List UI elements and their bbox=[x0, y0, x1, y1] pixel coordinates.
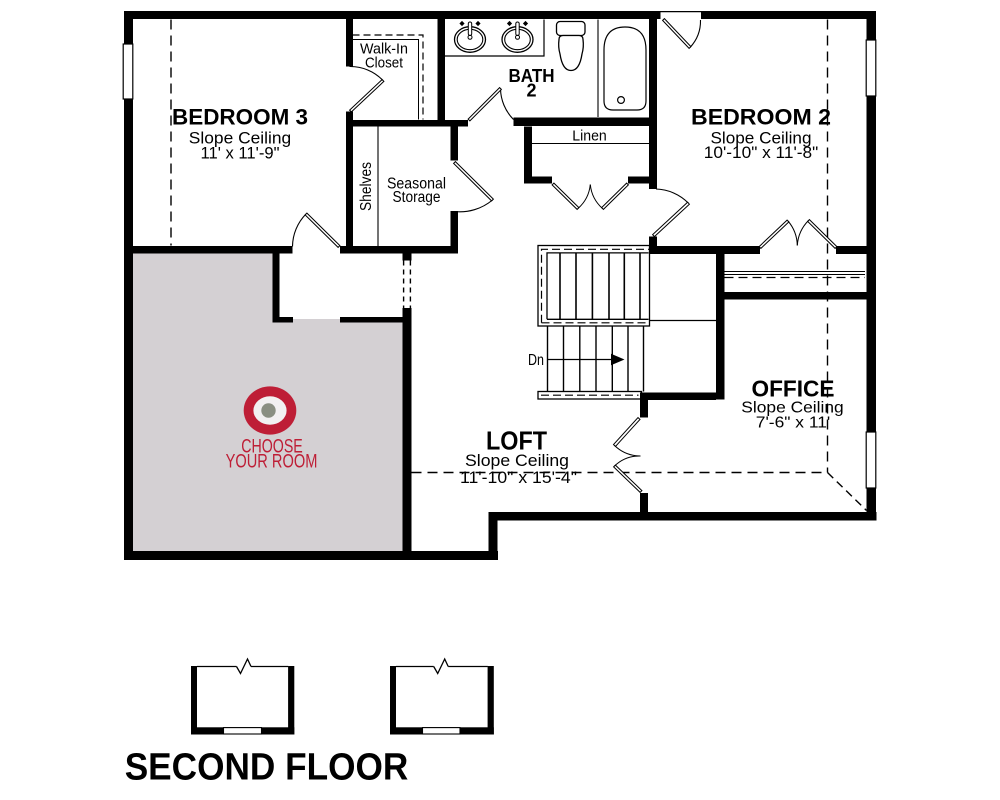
svg-text:LOFT: LOFT bbox=[486, 426, 547, 456]
svg-text:Dn: Dn bbox=[528, 352, 544, 369]
svg-text:10'-10" x 11'-8": 10'-10" x 11'-8" bbox=[704, 143, 819, 162]
svg-text:BEDROOM 3: BEDROOM 3 bbox=[172, 105, 308, 130]
svg-text:Storage: Storage bbox=[393, 189, 441, 206]
svg-text:Shelves: Shelves bbox=[358, 162, 375, 211]
svg-text:Slope Ceiling: Slope Ceiling bbox=[465, 452, 569, 470]
svg-text:BEDROOM 2: BEDROOM 2 bbox=[691, 105, 831, 130]
svg-text:7'-6" x 11': 7'-6" x 11' bbox=[756, 415, 831, 432]
svg-text:SECOND FLOOR: SECOND FLOOR bbox=[125, 747, 409, 789]
svg-text:YOUR ROOM: YOUR ROOM bbox=[226, 451, 318, 472]
svg-text:11' x 11'-9": 11' x 11'-9" bbox=[201, 144, 280, 163]
svg-text:Closet: Closet bbox=[365, 55, 404, 72]
svg-text:Linen: Linen bbox=[572, 128, 607, 145]
svg-text:11'-10" x 15'-4": 11'-10" x 15'-4" bbox=[460, 469, 577, 487]
svg-text:OFFICE: OFFICE bbox=[752, 376, 835, 402]
svg-text:2: 2 bbox=[526, 81, 536, 101]
